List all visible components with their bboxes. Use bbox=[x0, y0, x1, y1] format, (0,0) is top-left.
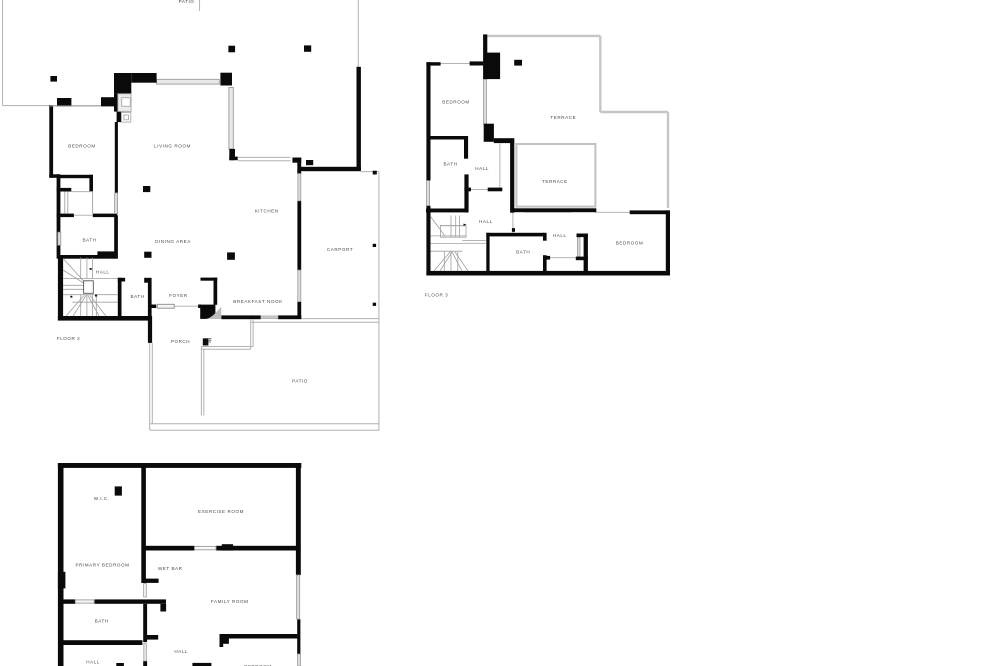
svg-text:FLOOR 2: FLOOR 2 bbox=[57, 336, 81, 341]
svg-text:TERRACE: TERRACE bbox=[550, 115, 576, 120]
svg-text:FOYER: FOYER bbox=[169, 293, 188, 298]
svg-text:LIVING ROOM: LIVING ROOM bbox=[154, 144, 191, 149]
svg-text:CARPORT: CARPORT bbox=[327, 247, 353, 252]
svg-text:WET BAR: WET BAR bbox=[158, 566, 183, 571]
svg-text:EXERCISE ROOM: EXERCISE ROOM bbox=[198, 509, 244, 514]
svg-text:HALL: HALL bbox=[553, 233, 567, 238]
svg-text:TERRACE: TERRACE bbox=[542, 179, 568, 184]
svg-text:PRIMARY BEDROOM: PRIMARY BEDROOM bbox=[75, 563, 129, 568]
svg-text:PATIO: PATIO bbox=[179, 0, 195, 4]
svg-text:BEDROOM: BEDROOM bbox=[616, 241, 644, 246]
svg-text:PORCH: PORCH bbox=[171, 339, 190, 344]
svg-text:HALL: HALL bbox=[479, 219, 493, 224]
svg-text:DINING AREA: DINING AREA bbox=[155, 239, 191, 244]
svg-text:HALL: HALL bbox=[96, 269, 110, 274]
svg-text:HALL: HALL bbox=[174, 649, 188, 654]
svg-text:KITCHEN: KITCHEN bbox=[255, 208, 279, 213]
svg-text:BATH: BATH bbox=[82, 238, 96, 243]
svg-text:W.I.C.: W.I.C. bbox=[94, 496, 110, 501]
svg-text:BREAKFAST NOOK: BREAKFAST NOOK bbox=[233, 299, 283, 304]
svg-text:PATIO: PATIO bbox=[292, 379, 308, 384]
svg-text:BATH: BATH bbox=[516, 249, 530, 254]
svg-text:FLOOR 3: FLOOR 3 bbox=[425, 292, 449, 297]
svg-text:BATH: BATH bbox=[131, 294, 145, 299]
svg-text:HALL: HALL bbox=[86, 660, 100, 665]
svg-text:BATH: BATH bbox=[443, 161, 457, 166]
svg-text:BEDROOM: BEDROOM bbox=[68, 144, 96, 149]
svg-text:HALL: HALL bbox=[475, 166, 489, 171]
svg-text:BATH: BATH bbox=[95, 618, 109, 623]
svg-text:BEDROOM: BEDROOM bbox=[442, 99, 470, 104]
svg-text:FAMILY ROOM: FAMILY ROOM bbox=[211, 599, 249, 604]
